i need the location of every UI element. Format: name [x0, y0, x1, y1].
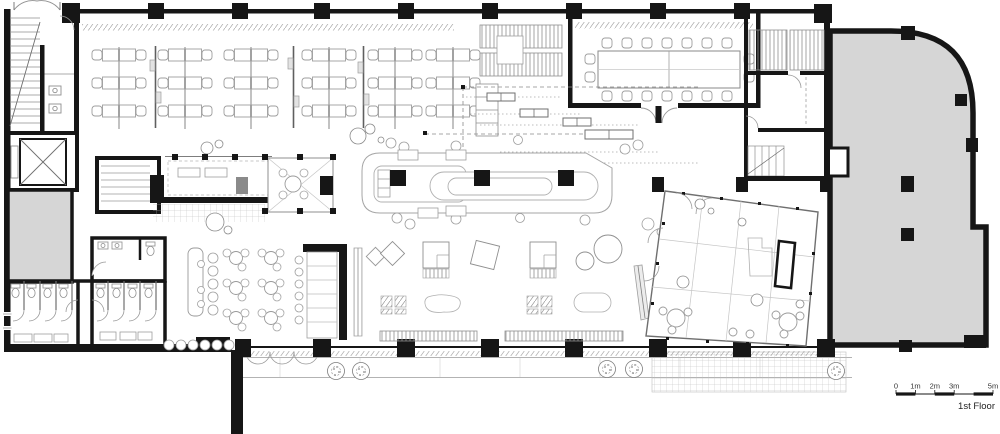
plants — [350, 124, 384, 144]
floor-plan-page: 0 1m 2m 3m 5m 1st Floor — [0, 0, 1000, 434]
tree — [626, 361, 643, 378]
storage-lockers — [476, 25, 562, 136]
cafe-table — [258, 249, 284, 271]
terrace-paving — [652, 352, 846, 392]
pouf-small — [576, 252, 594, 270]
site-exterior — [237, 351, 852, 392]
cleaning-room-fixtures — [49, 86, 61, 113]
rug-organic — [425, 295, 460, 313]
lounge-area — [380, 235, 649, 341]
wall-conf-bottom-left — [568, 103, 641, 108]
open-office-area — [92, 46, 480, 129]
scale-bar: 0 1m 2m 3m 5m — [894, 382, 998, 396]
cafe-shelf — [354, 248, 362, 336]
side-tables — [381, 296, 552, 314]
pavilion-media-room — [150, 140, 272, 234]
entrance-door — [14, 1, 60, 10]
desk-cluster — [158, 47, 212, 129]
floor-title: 1st Floor — [958, 401, 995, 412]
cafe-table — [223, 249, 249, 271]
accessible-wc — [92, 238, 155, 276]
pavilion-glass-meeting — [268, 158, 333, 212]
rug-pill — [574, 293, 611, 312]
sofa — [530, 242, 556, 278]
wall-stub-south — [231, 350, 243, 434]
conference-double-door — [641, 106, 677, 123]
meeting-pavilions — [97, 140, 336, 234]
desk-cluster — [302, 47, 356, 129]
wall-top — [63, 9, 830, 14]
floor-plan-drawing: 0 1m 2m 3m 5m 1st Floor — [0, 0, 1000, 434]
leaning-board — [634, 265, 649, 320]
conference-room — [568, 13, 761, 123]
secondary-stair — [748, 146, 784, 176]
desk-cluster — [92, 47, 146, 129]
desk-cluster — [368, 47, 422, 129]
shelving-room-a — [749, 30, 787, 70]
flex-table — [487, 93, 515, 101]
tree — [599, 361, 616, 378]
lounge-chair — [380, 241, 404, 265]
scale-label-2m: 2m — [930, 382, 940, 391]
pavilion-auditorium — [97, 158, 164, 212]
scale-label-5m: 5m — [988, 382, 998, 391]
scale-label-0: 0 — [894, 382, 898, 391]
pouf-large — [594, 235, 622, 263]
flex-table — [563, 118, 591, 126]
sofa — [423, 242, 449, 278]
elevator — [8, 133, 77, 190]
wall-conf-left — [568, 13, 573, 108]
cafe-table — [223, 279, 249, 301]
planter-diamond — [366, 247, 384, 265]
low-benches — [380, 331, 623, 341]
cafe-counter — [295, 244, 347, 340]
desk-cluster — [224, 47, 278, 129]
wc-stalls-a — [11, 281, 72, 342]
core-stair-elevator — [8, 13, 79, 282]
cafe-table — [258, 309, 284, 331]
tree — [328, 363, 345, 380]
glass-pavilion — [644, 191, 818, 347]
scale-label-3m: 3m — [949, 382, 959, 391]
cafe-table — [258, 279, 284, 301]
shelving-room-b — [790, 30, 824, 70]
tree — [828, 363, 845, 380]
wc-stalls-b — [96, 281, 156, 340]
facade-hatch-bottom — [250, 351, 818, 356]
scale-label-1m: 1m — [910, 382, 920, 391]
conference-table — [598, 51, 740, 88]
desk-cluster — [426, 47, 480, 129]
cafe-table — [223, 309, 249, 331]
service-shaft-gray — [8, 190, 72, 282]
lounge-chair — [470, 240, 499, 269]
wall-core-right — [74, 13, 79, 133]
cafe-area — [164, 244, 385, 350]
flex-table — [520, 109, 548, 117]
flex-sideboard — [585, 130, 633, 139]
tree — [353, 363, 370, 380]
